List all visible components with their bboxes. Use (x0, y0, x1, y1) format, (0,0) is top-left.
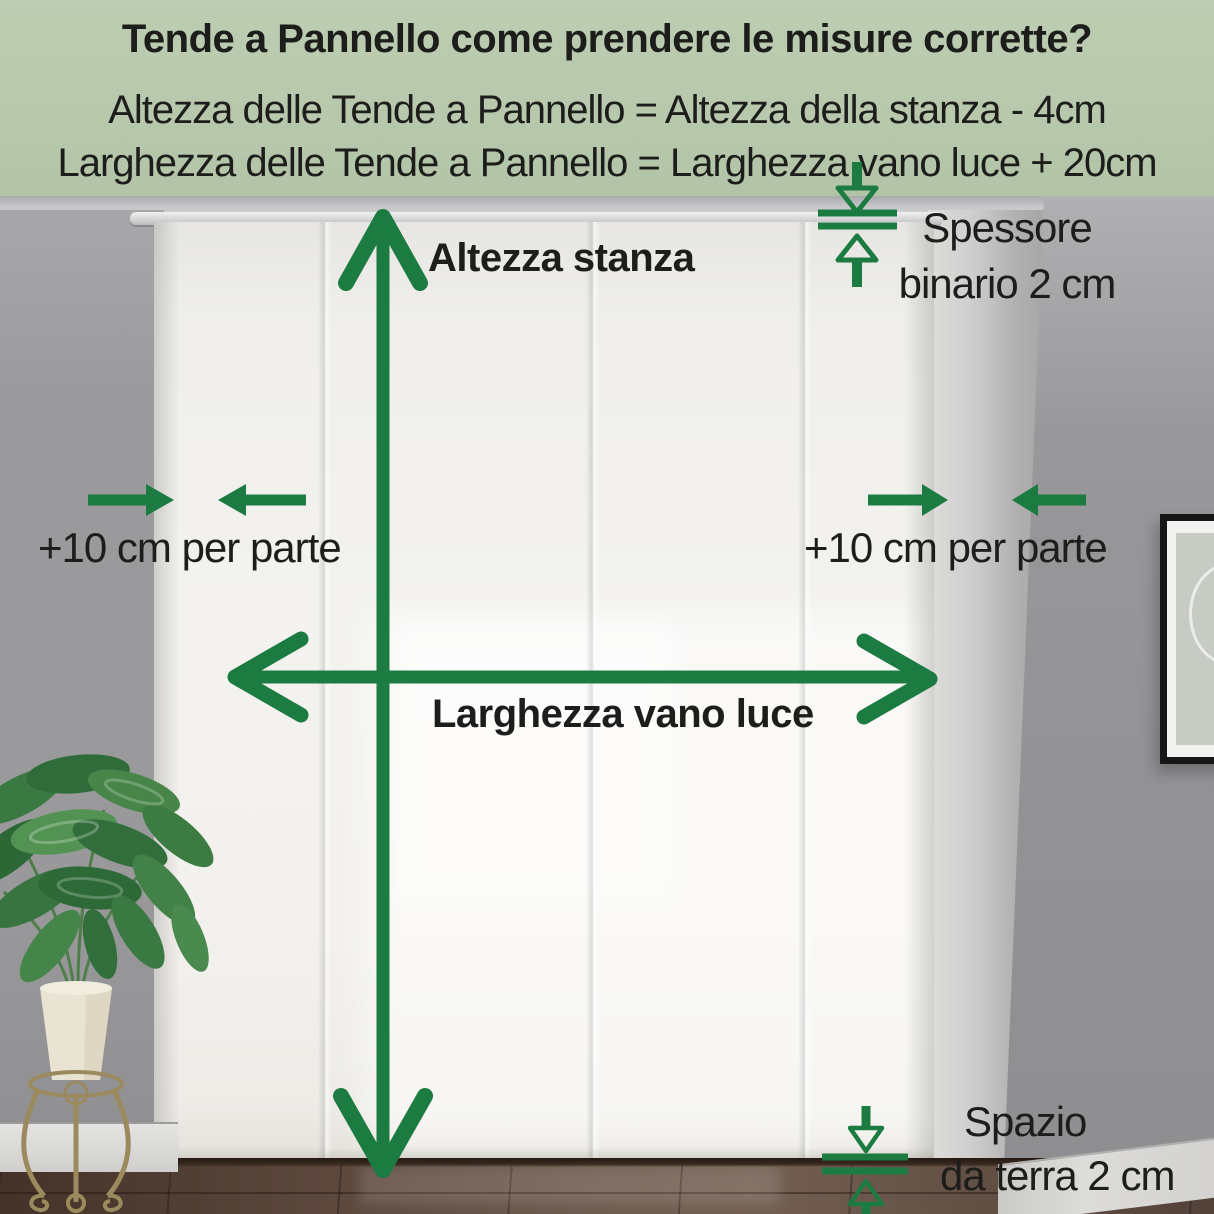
measurement-infographic: Tende a Pannello come prendere le misure… (0, 0, 1214, 1214)
room-height-label: Altezza stanza (428, 236, 694, 281)
page-title: Tende a Pannello come prendere le misure… (0, 14, 1214, 64)
floor-gap-label-line2: da terra 2 cm (940, 1152, 1174, 1200)
panel-seam (318, 222, 332, 1166)
window-glow-bright (394, 622, 674, 902)
rail-thickness-label-line2: binario 2 cm (884, 260, 1130, 308)
plant-leaves (0, 750, 220, 991)
panel-right-edge (904, 222, 934, 1166)
picture-frame (1160, 514, 1214, 764)
floor-reflection (360, 1166, 780, 1204)
opening-width-label: Larghezza vano luce (432, 692, 814, 737)
width-formula: Larghezza delle Tende a Pannello = Largh… (0, 139, 1214, 187)
floor-gap-label-line1: Spazio (964, 1098, 1086, 1146)
plant-pot (40, 981, 112, 1080)
height-formula: Altezza delle Tende a Pannello = Altezza… (0, 86, 1214, 134)
plant-stand (24, 1072, 129, 1211)
left-margin-label: +10 cm per parte (38, 524, 341, 572)
rail-thickness-label-line1: Spessore (884, 204, 1130, 252)
plant-decoration (0, 732, 220, 1214)
right-margin-label: +10 cm per parte (804, 524, 1107, 572)
header-banner: Tende a Pannello come prendere le misure… (0, 0, 1214, 196)
